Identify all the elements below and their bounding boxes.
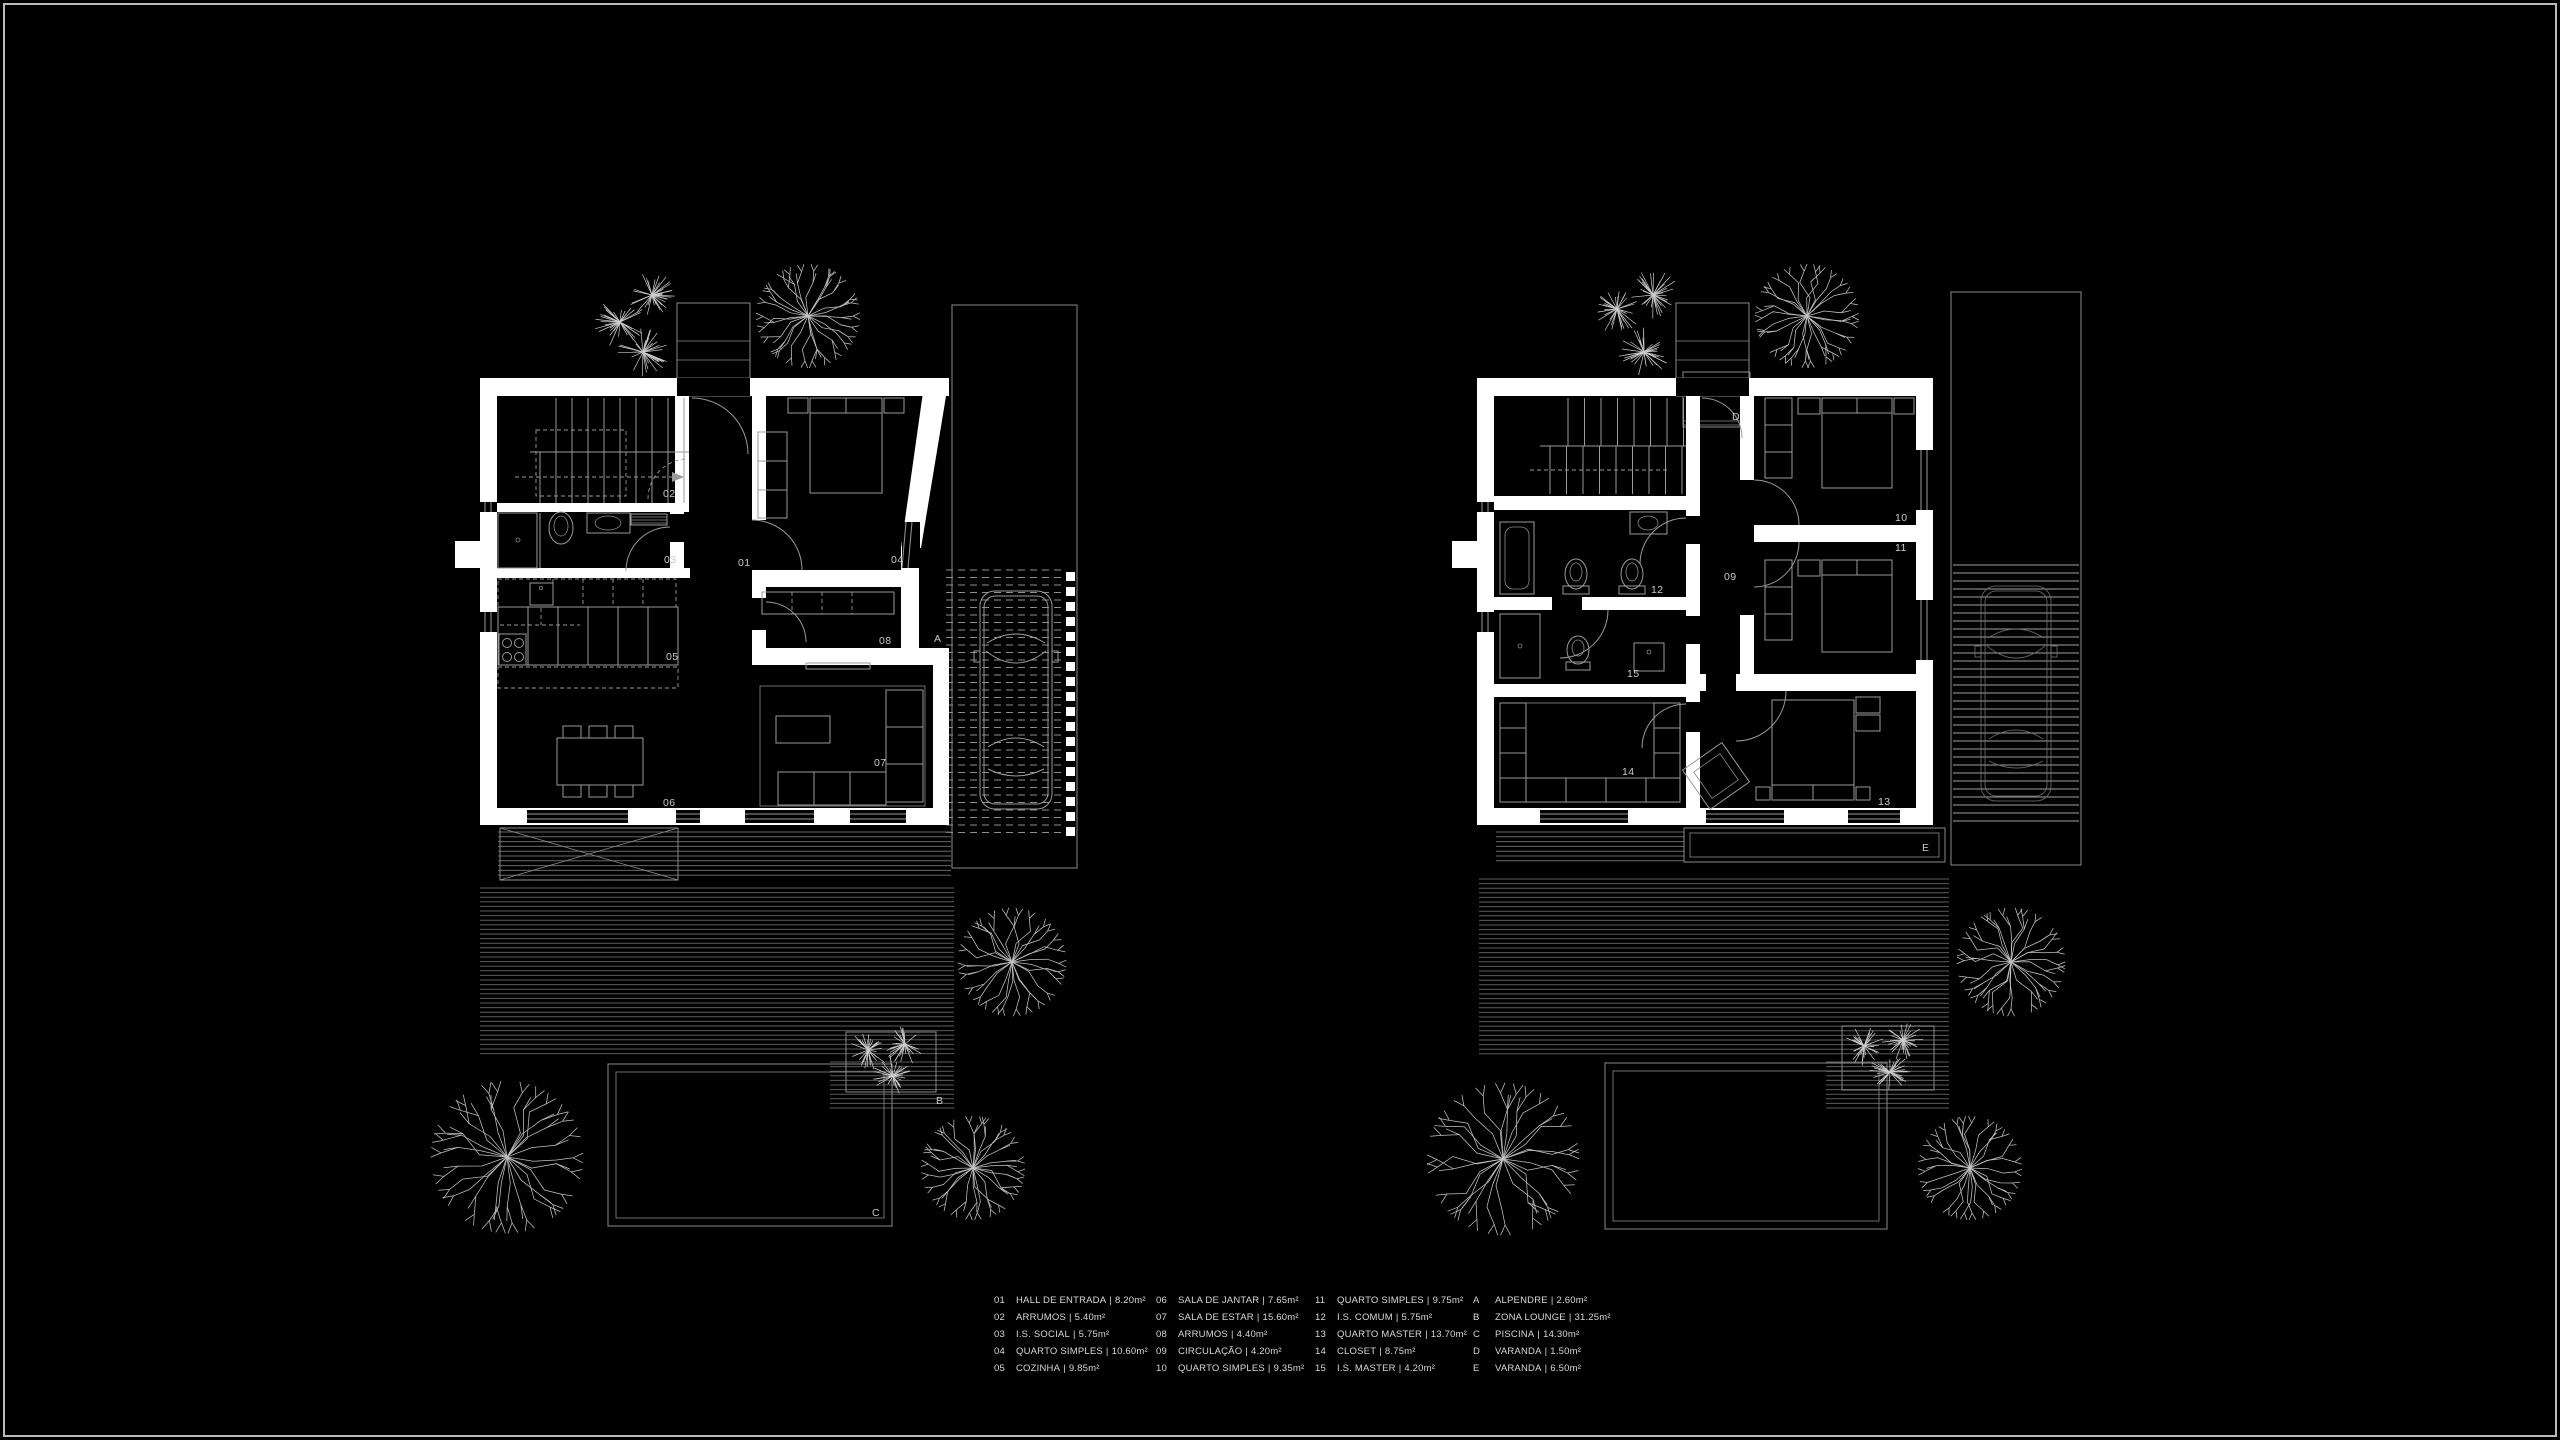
legend-item: 10QUARTO SIMPLES|9.35m² — [1156, 1361, 1304, 1378]
gf-openings — [480, 378, 920, 823]
legend-item-name: ARRUMOS — [1016, 1312, 1066, 1323]
legend-item-code: 02 — [994, 1310, 1016, 1327]
legend-item-area: 13.70m² — [1431, 1329, 1467, 1340]
legend-item: 01HALL DE ENTRADA|8.20m² — [994, 1293, 1148, 1310]
legend-item-name: QUARTO SIMPLES — [1178, 1363, 1265, 1374]
legend-item: DVARANDA|1.50m² — [1473, 1344, 1611, 1361]
legend-item-separator: | — [1265, 1363, 1274, 1374]
room-label: 11 — [1895, 542, 1907, 554]
legend-item: 13QUARTO MASTER|13.70m² — [1315, 1327, 1467, 1344]
legend-item-area: 4.20m² — [1251, 1346, 1282, 1357]
legend-item-separator: | — [1542, 1346, 1551, 1357]
legend-item-code: 09 — [1156, 1344, 1178, 1361]
legend-item-name: CIRCULAÇÃO — [1178, 1346, 1242, 1357]
legend-item-code: 11 — [1315, 1293, 1337, 1310]
legend-item-code: 01 — [994, 1293, 1016, 1310]
legend-item: 09CIRCULAÇÃO|4.20m² — [1156, 1344, 1304, 1361]
legend-item-area: 14.30m² — [1543, 1329, 1579, 1340]
legend-item-code: 03 — [994, 1327, 1016, 1344]
legend-item-separator: | — [1566, 1312, 1575, 1323]
legend-item-code: C — [1473, 1327, 1495, 1344]
legend-item-area: 5.75m² — [1079, 1329, 1110, 1340]
room-label: A — [934, 633, 941, 645]
legend-column: 11QUARTO SIMPLES|9.75m² 12I.S. COMUM|5.7… — [1315, 1293, 1467, 1377]
legend-item-separator: | — [1106, 1295, 1115, 1306]
legend-item-name: SALA DE ESTAR — [1178, 1312, 1254, 1323]
room-label: D — [1732, 411, 1740, 423]
uf-bathroom-comum — [1500, 512, 1686, 594]
gf-storage — [762, 592, 894, 642]
legend-item-area: 4.20m² — [1404, 1363, 1435, 1374]
room-label: 05 — [666, 651, 678, 663]
legend-item: 02ARRUMOS|5.40m² — [994, 1310, 1148, 1327]
legend-item: 12I.S. COMUM|5.75m² — [1315, 1310, 1467, 1327]
legend-item-name: VARANDA — [1495, 1363, 1542, 1374]
gf-dining — [557, 726, 643, 797]
room-label: 13 — [1878, 796, 1890, 808]
legend-item: 06SALA DE JANTAR|7.65m² — [1156, 1293, 1304, 1310]
legend-item-name: CLOSET — [1337, 1346, 1376, 1357]
upper-floor-plan: 09101112131415DE — [1427, 264, 2081, 1235]
legend-item-separator: | — [1393, 1312, 1402, 1323]
room-label: 01 — [738, 557, 750, 569]
legend-item-area: 15.60m² — [1262, 1312, 1298, 1323]
legend-item-name: QUARTO SIMPLES — [1337, 1295, 1424, 1306]
legend-item-separator: | — [1103, 1346, 1112, 1357]
legend-item-area: 6.50m² — [1550, 1363, 1581, 1374]
legend-item-code: A — [1473, 1293, 1495, 1310]
legend-item-code: E — [1473, 1361, 1495, 1378]
legend-item-code: B — [1473, 1310, 1495, 1327]
drawing-sheet: 0102030405060708ABC — [0, 0, 2560, 1440]
legend-item-separator: | — [1070, 1329, 1079, 1340]
legend-item-name: ZONA LOUNGE — [1495, 1312, 1566, 1323]
legend-item-code: D — [1473, 1344, 1495, 1361]
legend-item-area: 9.85m² — [1069, 1363, 1100, 1374]
legend-item-code: 08 — [1156, 1327, 1178, 1344]
legend-item: CPISCINA|14.30m² — [1473, 1327, 1611, 1344]
uf-pool — [1605, 1063, 1887, 1229]
uf-walls — [1452, 378, 1933, 825]
legend-item-name: QUARTO SIMPLES — [1016, 1346, 1103, 1357]
legend-column: 01HALL DE ENTRADA|8.20m² 02ARRUMOS|5.40m… — [994, 1293, 1148, 1377]
room-label: 15 — [1627, 668, 1639, 680]
room-label: 02 — [663, 488, 675, 500]
legend-item-area: 31.25m² — [1575, 1312, 1611, 1323]
legend-item-name: SALA DE JANTAR — [1178, 1295, 1259, 1306]
legend-item-name: QUARTO MASTER — [1337, 1329, 1422, 1340]
legend-item-code: 15 — [1315, 1361, 1337, 1378]
room-label: 03 — [664, 554, 676, 566]
room-label: E — [1922, 842, 1929, 854]
room-label: C — [872, 1207, 880, 1219]
room-label: B — [936, 1095, 943, 1107]
gf-lounge-deck — [480, 888, 954, 1108]
legend-item-separator: | — [1228, 1329, 1237, 1340]
legend-column: 06SALA DE JANTAR|7.65m² 07SALA DE ESTAR|… — [1156, 1293, 1304, 1377]
room-label: 12 — [1651, 584, 1663, 596]
legend-item: 07SALA DE ESTAR|15.60m² — [1156, 1310, 1304, 1327]
legend-item: AALPENDRE|2.60m² — [1473, 1293, 1611, 1310]
gf-trees — [431, 264, 1067, 1233]
legend-column: AALPENDRE|2.60m² BZONA LOUNGE|31.25m² CP… — [1473, 1293, 1611, 1377]
legend-item-separator: | — [1259, 1295, 1268, 1306]
legend-item-separator: | — [1542, 1363, 1551, 1374]
legend-item-name: HALL DE ENTRADA — [1016, 1295, 1106, 1306]
room-label: 09 — [1724, 571, 1736, 583]
room-label: 08 — [879, 635, 891, 647]
legend-item-name: I.S. MASTER — [1337, 1363, 1396, 1374]
gf-pool — [608, 1064, 892, 1226]
legend-item-area: 9.75m² — [1433, 1295, 1464, 1306]
legend-item-separator: | — [1060, 1363, 1069, 1374]
legend-item-area: 7.65m² — [1268, 1295, 1299, 1306]
legend-item-code: 07 — [1156, 1310, 1178, 1327]
gf-kitchen — [498, 579, 678, 688]
uf-patio-strip — [1496, 832, 1684, 861]
legend-item: EVARANDA|6.50m² — [1473, 1361, 1611, 1378]
legend-item-separator: | — [1376, 1346, 1385, 1357]
uf-bedroom-10 — [1765, 398, 1914, 488]
uf-stairs — [1530, 398, 1686, 494]
legend-item-name: I.S. SOCIAL — [1016, 1329, 1070, 1340]
room-label: 14 — [1622, 766, 1634, 778]
legend-item-area: 5.75m² — [1402, 1312, 1433, 1323]
legend-item: 15I.S. MASTER|4.20m² — [1315, 1361, 1467, 1378]
legend-item-code: 12 — [1315, 1310, 1337, 1327]
room-label: 04 — [891, 554, 903, 566]
legend-item-code: 05 — [994, 1361, 1016, 1378]
legend-item-code: 10 — [1156, 1361, 1178, 1378]
legend-item-area: 8.20m² — [1115, 1295, 1146, 1306]
legend-item: 14CLOSET|8.75m² — [1315, 1344, 1467, 1361]
legend-item-separator: | — [1242, 1346, 1251, 1357]
legend-item: 08ARRUMOS|4.40m² — [1156, 1327, 1304, 1344]
uf-bedroom-11 — [1765, 560, 1892, 652]
gf-hall-doors — [692, 398, 802, 570]
legend-item-code: 13 — [1315, 1327, 1337, 1344]
legend-item: BZONA LOUNGE|31.25m² — [1473, 1310, 1611, 1327]
legend-item-separator: | — [1534, 1329, 1543, 1340]
legend-item-name: VARANDA — [1495, 1346, 1542, 1357]
legend-item-name: I.S. COMUM — [1337, 1312, 1393, 1323]
uf-closet — [1500, 703, 1686, 802]
room-label: 06 — [663, 797, 675, 809]
uf-varanda-e — [1684, 828, 1945, 862]
room-label: 07 — [874, 757, 886, 769]
legend-item-name: PISCINA — [1495, 1329, 1534, 1340]
legend-item-area: 4.40m² — [1237, 1329, 1268, 1340]
gf-bedroom — [758, 398, 904, 518]
uf-bedroom-master — [1683, 697, 1880, 809]
legend-item-code: 04 — [994, 1344, 1016, 1361]
legend-item-area: 2.60m² — [1556, 1295, 1587, 1306]
room-label: 10 — [1895, 512, 1907, 524]
legend-item-area: 8.75m² — [1385, 1346, 1416, 1357]
gf-living — [760, 663, 925, 806]
ground-floor-plan: 0102030405060708ABC — [431, 264, 1077, 1233]
floor-plans-drawing: 0102030405060708ABC — [0, 0, 2560, 1440]
legend-item-name: ARRUMOS — [1178, 1329, 1228, 1340]
legend-item: 03I.S. SOCIAL|5.75m² — [994, 1327, 1148, 1344]
legend-item: 11QUARTO SIMPLES|9.75m² — [1315, 1293, 1467, 1310]
legend-item: 04QUARTO SIMPLES|10.60m² — [994, 1344, 1148, 1361]
legend-item: 05COZINHA|9.85m² — [994, 1361, 1148, 1378]
legend-item-code: 14 — [1315, 1344, 1337, 1361]
legend-item-area: 5.40m² — [1075, 1312, 1106, 1323]
legend-item-area: 1.50m² — [1550, 1346, 1581, 1357]
legend-item-area: 9.35m² — [1274, 1363, 1305, 1374]
uf-carport — [1951, 292, 2081, 865]
gf-patio-strip — [498, 828, 951, 880]
legend-item-name: ALPENDRE — [1495, 1295, 1548, 1306]
legend-item-area: 10.60m² — [1112, 1346, 1148, 1357]
legend-item-separator: | — [1422, 1329, 1431, 1340]
gf-driveway — [946, 305, 1077, 868]
legend-item-separator: | — [1424, 1295, 1433, 1306]
gf-bathroom — [498, 512, 670, 571]
legend-item-code: 06 — [1156, 1293, 1178, 1310]
legend-item-separator: | — [1066, 1312, 1075, 1323]
uf-room-labels: 09101112131415DE — [1622, 411, 1929, 854]
legend-item-name: COZINHA — [1016, 1363, 1060, 1374]
